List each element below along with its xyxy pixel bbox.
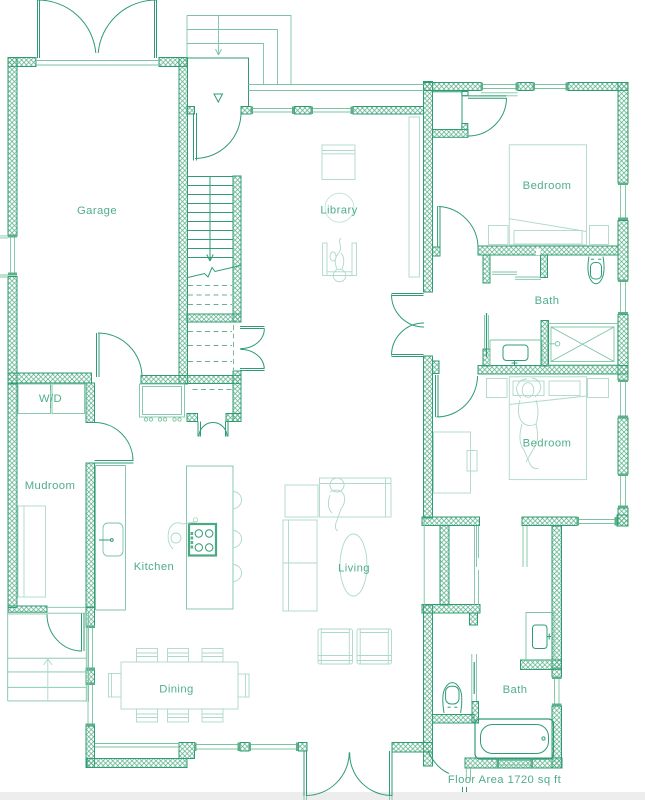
svg-text:Bath: Bath — [503, 684, 528, 696]
svg-text:Living: Living — [338, 563, 370, 575]
svg-text:W/D: W/D — [39, 393, 62, 405]
svg-text:Floor Area 1720 sq ft: Floor Area 1720 sq ft — [448, 774, 562, 786]
svg-text:Kitchen: Kitchen — [134, 561, 174, 573]
svg-text:Dining: Dining — [159, 684, 193, 696]
svg-text:Bedroom: Bedroom — [523, 180, 572, 192]
svg-text:Garage: Garage — [77, 205, 117, 217]
svg-text:Mudroom: Mudroom — [25, 480, 76, 492]
svg-text:Bedroom: Bedroom — [523, 438, 572, 450]
svg-text:Bath: Bath — [535, 295, 560, 307]
svg-text:Library: Library — [320, 205, 357, 217]
